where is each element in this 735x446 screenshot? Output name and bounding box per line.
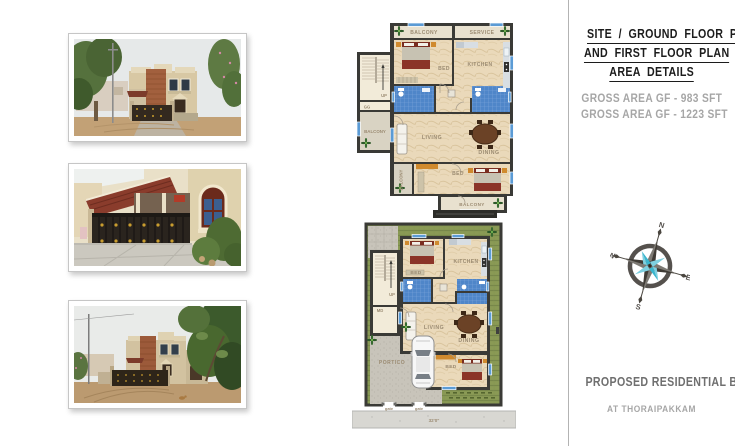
- ff-label-gg: GG: [364, 105, 371, 110]
- gross-area-details: GROSS AREA GF - 983 SFT GROSS AREA GF - …: [568, 90, 735, 122]
- compass-e-label: E: [685, 272, 690, 282]
- gf-label-living: LIVING: [424, 325, 444, 331]
- gf-label-md: MD: [377, 308, 384, 313]
- ground-floor-plan-drawing: BED KITCHEN UP MD LIVING DINING BED PORT…: [352, 208, 516, 434]
- gf-label-dining: DINING: [458, 338, 479, 344]
- ground-floor-site-plan: BED KITCHEN UP MD LIVING DINING BED PORT…: [352, 208, 516, 439]
- sheet-title-line-1: SITE / GROUND FLOOR PLAN: [587, 25, 735, 44]
- project-location: AT THORAIPAKKAM: [568, 399, 735, 417]
- ff-label-balcony-left: BALCONY: [364, 129, 386, 134]
- compass-rose: N E S W: [610, 222, 690, 315]
- site-photo-1: [68, 33, 247, 142]
- ff-label-bed-top: BED: [438, 66, 450, 72]
- gf-label-bed-bottom: BED: [445, 364, 456, 370]
- gross-area-ff: GROSS AREA GF - 1223 SFT: [581, 106, 728, 122]
- site-photo-2-image: [74, 169, 241, 266]
- ff-label-service: SERVICE: [470, 30, 495, 36]
- gf-label-gate-right: gate: [415, 406, 424, 411]
- project-title-text: PROPOSED RESIDENTIAL BUILDING: [585, 375, 735, 389]
- ff-label-balcony-bottom: BALCONY: [459, 202, 485, 207]
- site-photo-3-image: [74, 306, 241, 403]
- ff-label-kitchen: KITCHEN: [467, 62, 492, 68]
- gf-label-bed-top: BED: [410, 270, 421, 276]
- site-photo-3: [68, 300, 247, 409]
- ff-label-balcony-top: BALCONY: [410, 30, 438, 36]
- sheet-title-line-2: AND FIRST FLOOR PLAN: [584, 44, 729, 63]
- ff-label-bed-bottom: BED: [452, 171, 464, 177]
- sheet-title: SITE / GROUND FLOOR PLAN AND FIRST FLOOR…: [568, 25, 735, 82]
- site-photo-1-image: [74, 39, 241, 136]
- compass-rose-drawing: N E S W: [610, 222, 690, 310]
- first-floor-plan: BALCONY SERVICE BED KITCHEN UP GG BALCON…: [356, 22, 514, 219]
- gf-label-road-dimension: 32'0": [429, 418, 440, 423]
- first-floor-plan-drawing: BALCONY SERVICE BED KITCHEN UP GG BALCON…: [356, 22, 514, 214]
- project-title: PROPOSED RESIDENTIAL BUILDING: [568, 373, 735, 391]
- site-photo-2: [68, 163, 247, 272]
- gf-label-portico: PORTICO: [379, 360, 405, 366]
- gf-label-gate-left: gate: [385, 406, 394, 411]
- gf-label-up: UP: [389, 292, 395, 297]
- ff-label-up: UP: [381, 93, 387, 98]
- compass-s-label: S: [635, 302, 642, 310]
- compass-n-label: N: [658, 222, 666, 230]
- ff-label-balcony-side: BALCONY: [399, 169, 404, 190]
- gf-label-kitchen: KITCHEN: [453, 259, 478, 265]
- ff-label-living: LIVING: [422, 135, 442, 141]
- presentation-sheet: BALCONY SERVICE BED KITCHEN UP GG BALCON…: [0, 0, 735, 446]
- sheet-title-line-3: AREA DETAILS: [609, 63, 694, 82]
- project-location-text: AT THORAIPAKKAM: [607, 404, 696, 415]
- ff-label-dining: DINING: [478, 150, 499, 156]
- gross-area-gf: GROSS AREA GF - 983 SFT: [581, 90, 722, 106]
